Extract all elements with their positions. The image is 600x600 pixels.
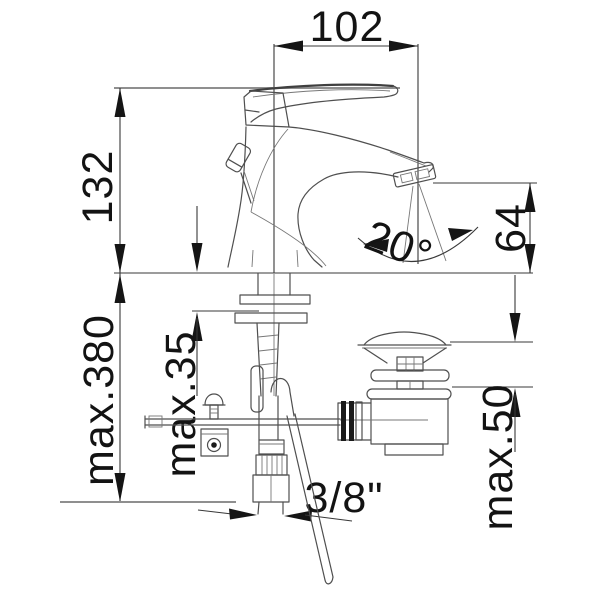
supply-hose-vertical <box>253 396 289 514</box>
mounting-shank <box>235 273 310 412</box>
drain-funnel <box>364 348 446 363</box>
drain-depth-reference <box>450 275 533 342</box>
aerator <box>393 164 436 187</box>
drain-side-pipe <box>338 401 371 441</box>
arrowhead-down <box>192 243 203 272</box>
dimension-102-label: 102 <box>310 3 385 51</box>
dimension-64: 64 <box>433 183 537 273</box>
drain-flange-lower <box>367 389 451 399</box>
drain-flange-upper <box>371 370 449 381</box>
pop-up-drain <box>338 332 451 455</box>
dimension-max35: max.35 <box>157 206 259 478</box>
arrowhead-bottom <box>115 244 126 273</box>
dimension-20-label: 20° <box>358 212 439 281</box>
arrowhead-right <box>389 41 418 52</box>
dimension-64-label: 64 <box>487 203 535 253</box>
pull-rod-knob <box>225 142 254 203</box>
dimension-132-label: 132 <box>74 150 122 225</box>
dimension-hose-3-8: 3/8" <box>198 474 384 522</box>
drain-tailpiece <box>385 444 443 455</box>
handle-lever <box>250 85 398 122</box>
dimension-max50: max.50 <box>452 383 533 530</box>
dimension-max380: max.380 <box>60 273 236 502</box>
dimension-max380-label: max.380 <box>75 314 123 486</box>
leader-left <box>198 510 232 514</box>
arrowhead-arc-right <box>448 228 473 241</box>
dimension-132: 132 <box>74 88 400 273</box>
drain-body <box>371 399 448 444</box>
arrowhead-left <box>274 41 303 52</box>
drain-plug-dome <box>364 332 446 345</box>
arrowhead-top <box>115 88 126 117</box>
faucet-technical-drawing: 102 132 64 20° max.380 <box>0 0 600 600</box>
arrowhead-down <box>510 313 521 342</box>
arrowhead-right <box>229 509 257 520</box>
dimension-max50-label: max.50 <box>474 383 522 530</box>
dimension-3-8-label: 3/8" <box>304 474 383 522</box>
arrowhead-top <box>115 274 126 303</box>
dimension-max35-label: max.35 <box>157 330 205 477</box>
